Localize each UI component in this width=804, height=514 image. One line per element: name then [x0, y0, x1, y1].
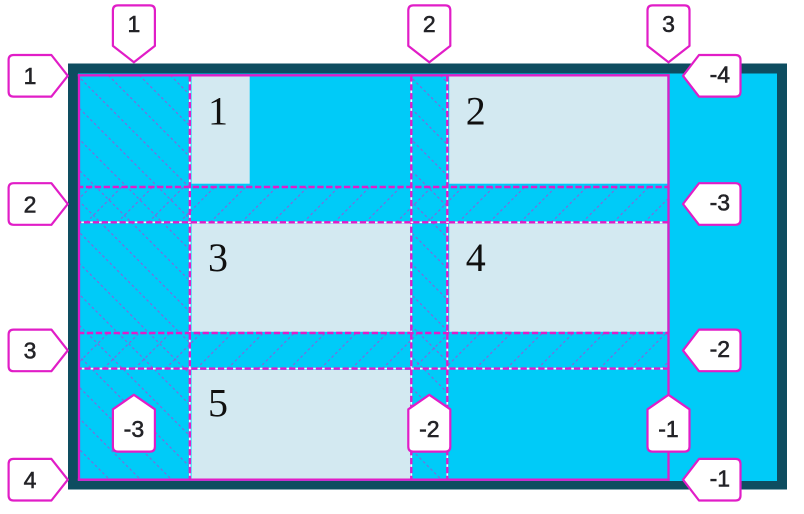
svg-text:-2: -2: [419, 416, 439, 442]
svg-text:-1: -1: [658, 416, 678, 442]
svg-text:1: 1: [208, 89, 228, 134]
svg-text:1: 1: [24, 63, 37, 89]
svg-text:2: 2: [466, 89, 486, 134]
svg-text:3: 3: [24, 338, 37, 364]
svg-text:3: 3: [208, 235, 228, 280]
svg-text:5: 5: [208, 381, 228, 426]
svg-text:-1: -1: [710, 465, 730, 491]
svg-text:1: 1: [128, 11, 141, 37]
svg-text:-4: -4: [710, 61, 731, 87]
svg-text:2: 2: [423, 11, 436, 37]
svg-text:4: 4: [24, 467, 37, 493]
svg-text:-3: -3: [124, 416, 144, 442]
svg-text:3: 3: [662, 11, 675, 37]
svg-text:-3: -3: [710, 190, 730, 216]
svg-text:4: 4: [466, 235, 486, 280]
svg-text:2: 2: [24, 191, 37, 217]
svg-text:-2: -2: [710, 336, 730, 362]
